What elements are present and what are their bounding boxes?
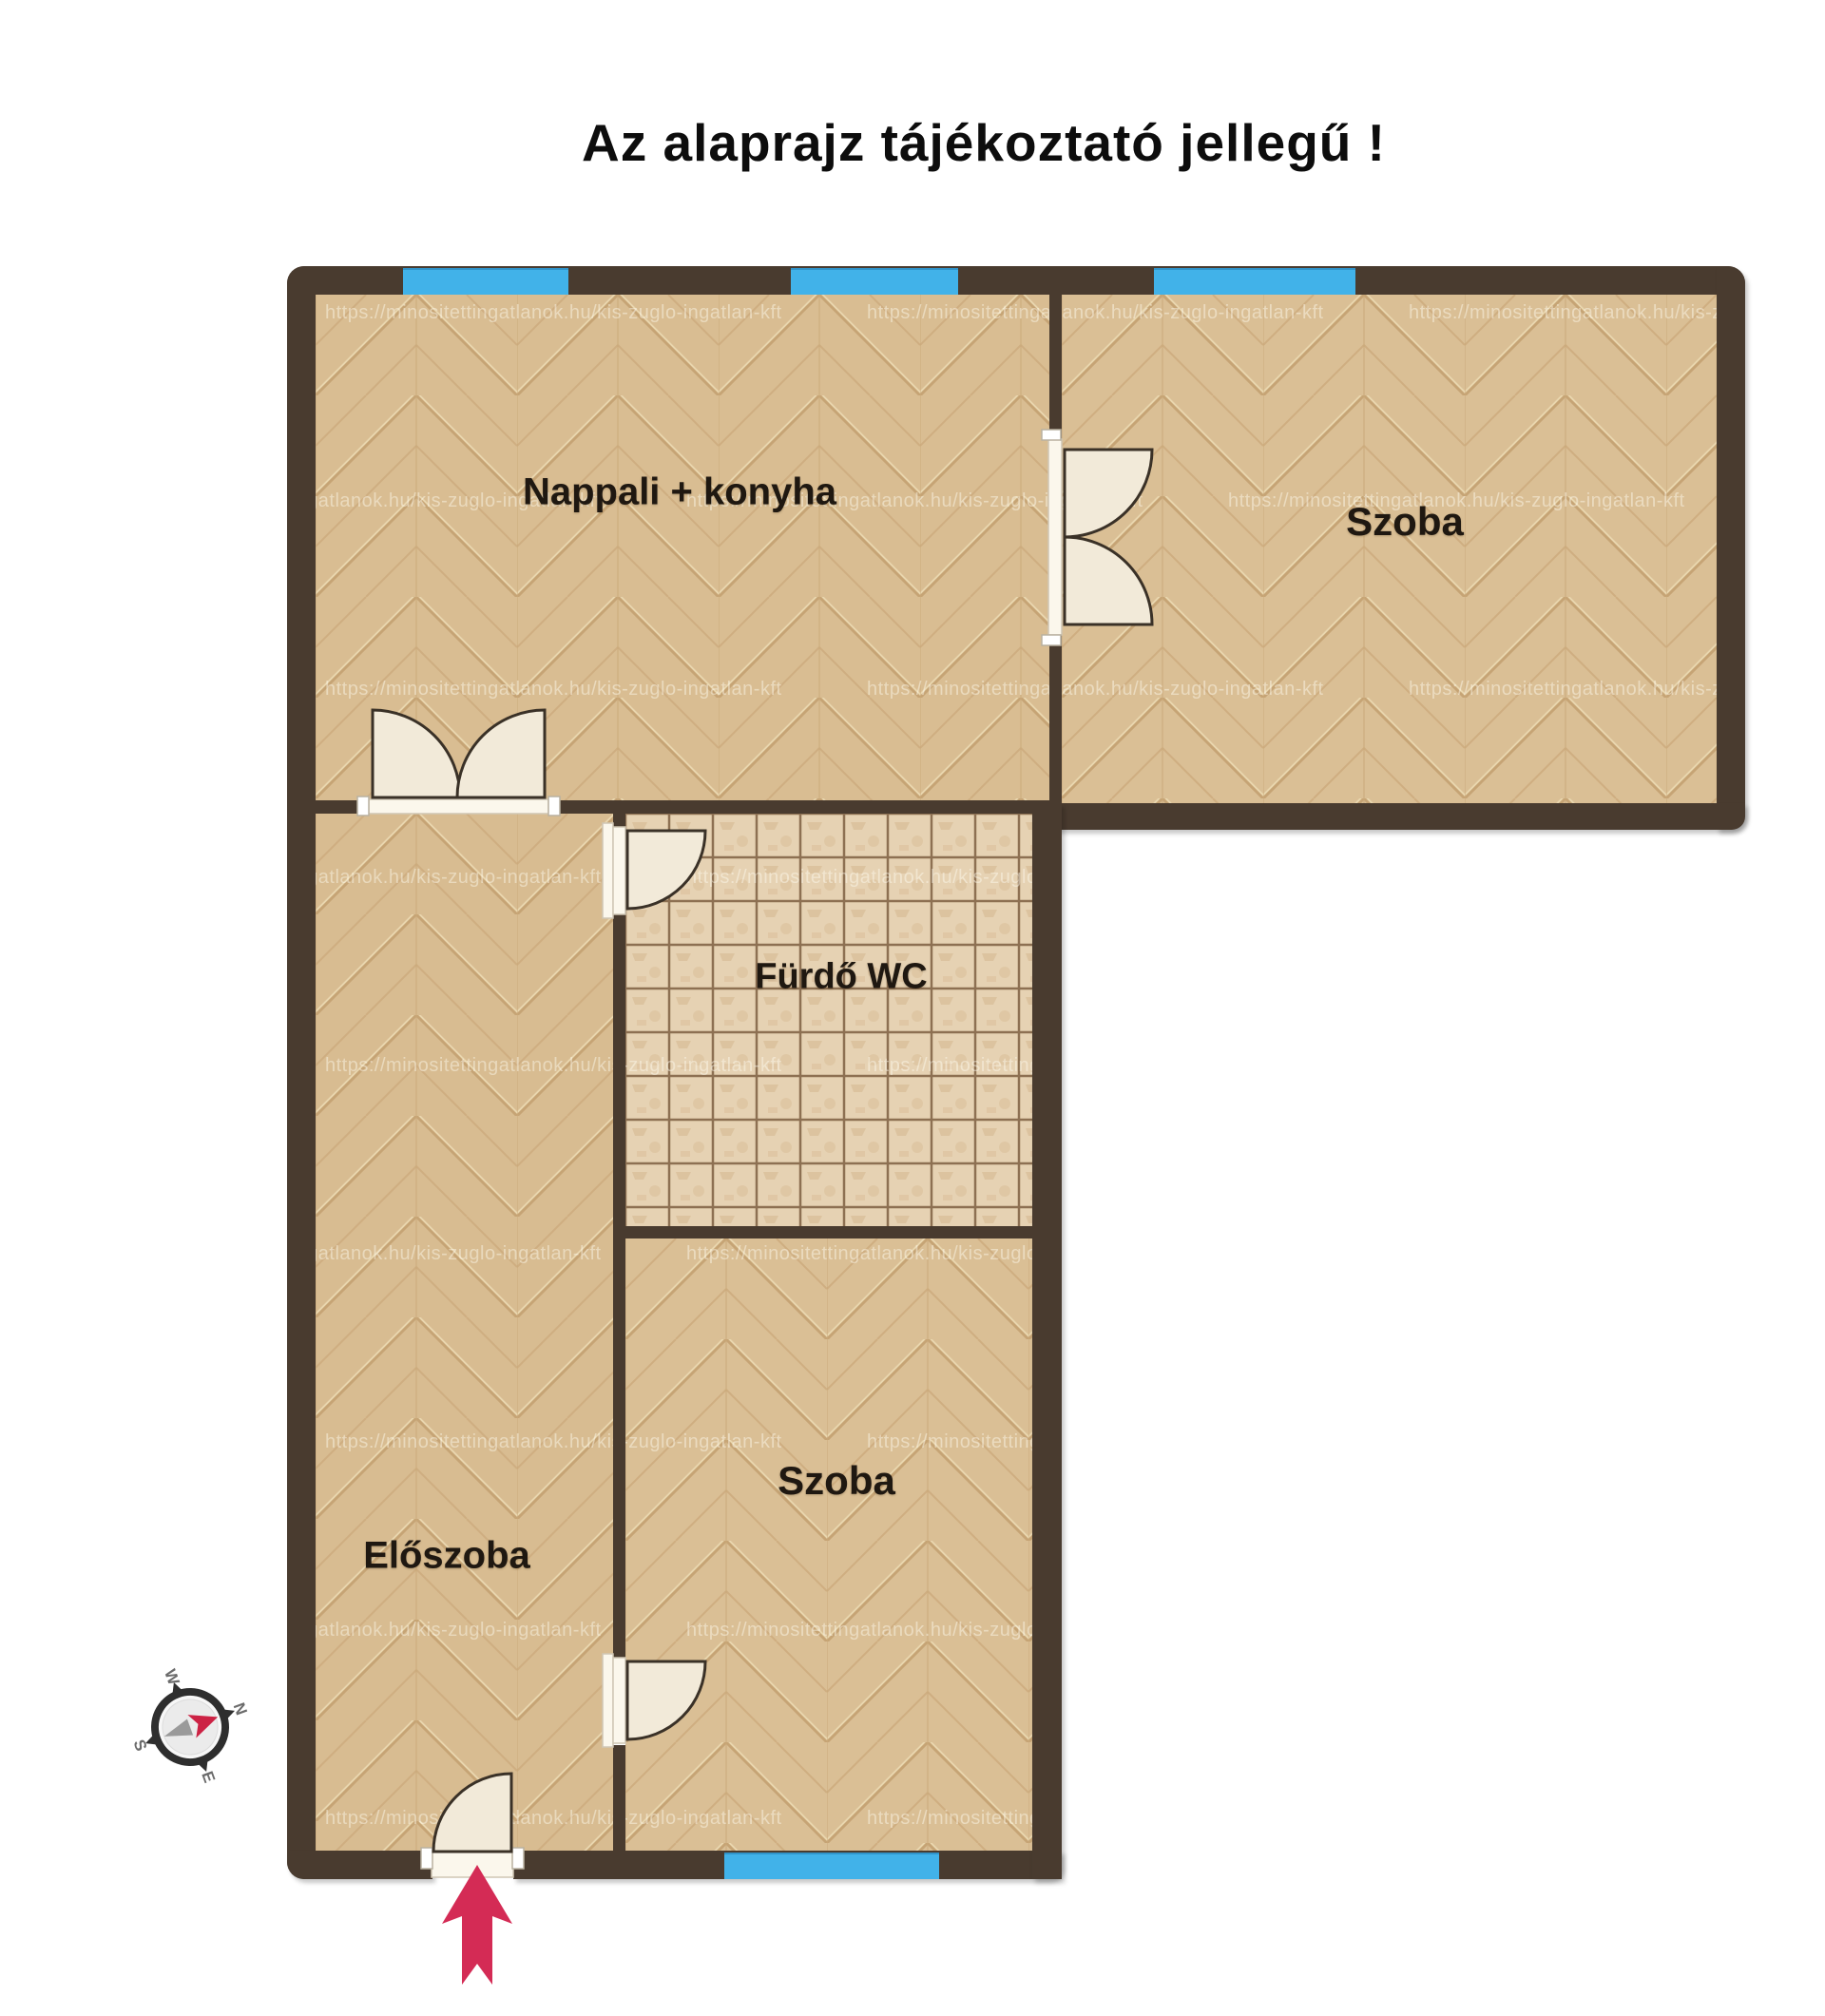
door-frame-bathroom bbox=[613, 827, 625, 914]
door-leaf-bedroom-bottom bbox=[627, 1661, 705, 1739]
door-frame-bedroom-bottom bbox=[613, 1658, 625, 1743]
compass-label-w: W bbox=[161, 1667, 183, 1688]
door-jamb bbox=[548, 797, 560, 816]
compass-rose-icon: N E S W bbox=[84, 1619, 297, 1835]
door-leaf-bathroom bbox=[627, 831, 705, 909]
door-jamb bbox=[512, 1848, 524, 1869]
door-leaf-entrance bbox=[433, 1774, 511, 1852]
compass-label-n: N bbox=[230, 1700, 251, 1718]
door-leaf-living-hall-right bbox=[457, 710, 545, 797]
door-frame-living-bedroom bbox=[1048, 439, 1062, 635]
door-leaf-living-hall-left bbox=[373, 710, 460, 797]
door-jamb bbox=[421, 1848, 432, 1869]
door-leaf-living-bedroom-bottom bbox=[1065, 537, 1152, 624]
floorplan-canvas: Az alaprajz tájékoztató jellegű ! bbox=[0, 0, 1825, 2016]
door-jamb bbox=[1042, 635, 1061, 645]
label-hall: Előszoba bbox=[363, 1535, 530, 1578]
label-bedroom-top: Szoba bbox=[1346, 499, 1464, 545]
door-jamb bbox=[1042, 430, 1061, 440]
compass-label-s: S bbox=[130, 1738, 151, 1754]
door-leaf-living-bedroom-top bbox=[1065, 450, 1152, 537]
door-jamb bbox=[357, 797, 369, 816]
label-bedroom-bottom: Szoba bbox=[778, 1458, 895, 1504]
door-casing-bedroom-bottom bbox=[603, 1654, 613, 1747]
entrance-arrow bbox=[442, 1865, 512, 1985]
label-living-room: Nappali + konyha bbox=[523, 471, 836, 514]
label-bathroom: Fürdő WC bbox=[755, 957, 928, 998]
door-frame-living-hall bbox=[369, 799, 548, 814]
door-casing-bathroom bbox=[603, 823, 613, 918]
compass-label-e: E bbox=[198, 1769, 219, 1785]
